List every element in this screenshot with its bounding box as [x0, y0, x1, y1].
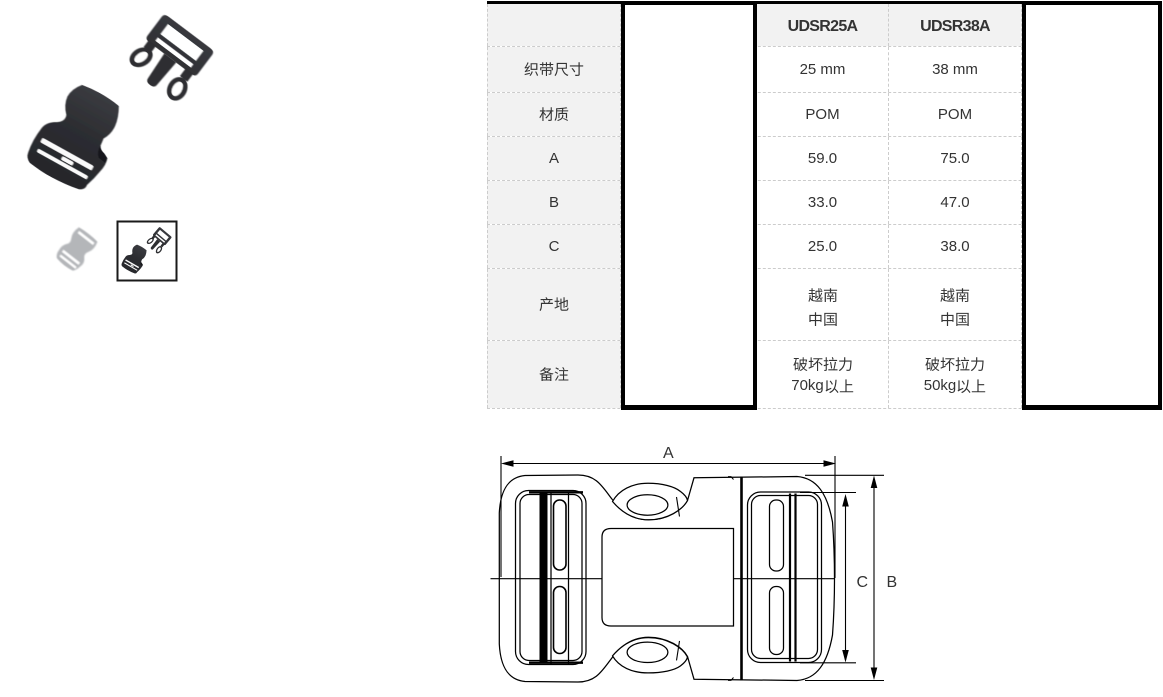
svg-text:A: A [663, 445, 674, 462]
svg-text:B: B [887, 574, 898, 591]
svg-text:C: C [857, 574, 869, 591]
